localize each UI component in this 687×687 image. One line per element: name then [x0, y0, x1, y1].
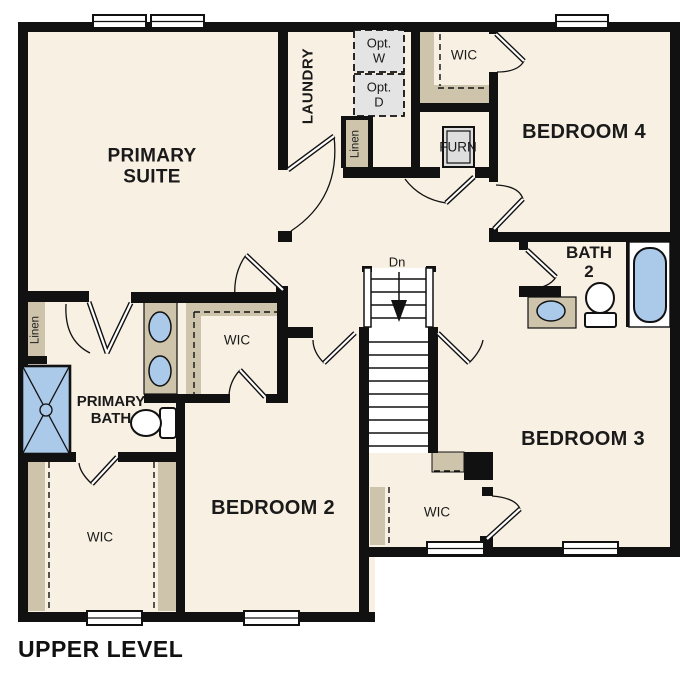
room-label-laundry: LAUNDRY	[301, 48, 318, 124]
floor	[18, 22, 680, 622]
bath2-toilet	[585, 283, 616, 327]
room-label-bath-2: BATH 2	[566, 243, 612, 281]
stair-rail	[364, 268, 371, 327]
plan-title: UPPER LEVEL	[18, 636, 183, 663]
room-label-bedroom-3: BEDROOM 3	[521, 428, 645, 450]
room-label-bedroom-4: BEDROOM 4	[522, 121, 646, 143]
label-furnace: FURN	[439, 139, 477, 154]
label-linen-laundry: Linen	[350, 130, 363, 158]
room-label-wic-bottom-right: WIC	[424, 504, 450, 519]
label-linen-hall: Linen	[30, 316, 43, 344]
room-label-primary-bath: PRIMARY BATH	[77, 394, 146, 428]
understair-shelf	[432, 452, 464, 472]
stair-rail	[426, 268, 433, 327]
label-optional-washer: Opt. W	[367, 36, 392, 65]
floor-plan: PRIMARY SUITE LAUNDRY Opt. W Opt. D WIC …	[0, 0, 687, 687]
room-label-primary-suite: PRIMARY SUITE	[107, 146, 196, 189]
room-label-wic-middle: WIC	[224, 332, 250, 347]
understair-corner	[464, 452, 493, 480]
label-optional-dryer: Opt. D	[367, 80, 392, 109]
shower-drain	[40, 404, 52, 416]
room-label-wic-top: WIC	[451, 47, 477, 62]
room-label-wic-bottom-left: WIC	[87, 529, 113, 544]
bath2-sink	[537, 301, 565, 321]
shower	[22, 366, 70, 454]
floor-plan-drawing	[0, 0, 687, 687]
room-label-bedroom-2: BEDROOM 2	[211, 497, 335, 519]
bathtub	[629, 242, 670, 327]
label-stairs-down: Dn	[389, 256, 406, 271]
